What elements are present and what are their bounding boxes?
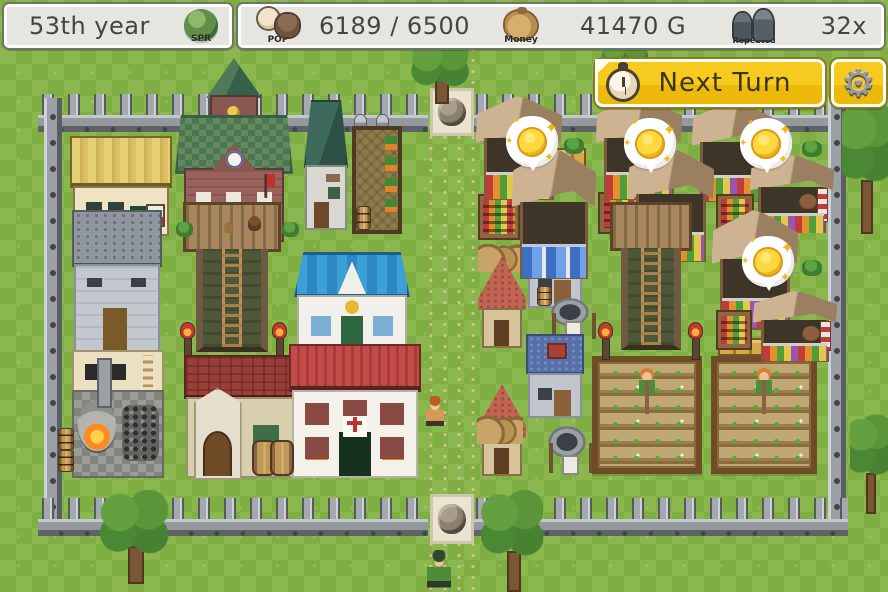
tree [98,490,170,584]
gear-icon: ⚙ [842,65,875,102]
tree [842,96,888,234]
villager [427,550,451,590]
coin-spark [741,256,749,267]
money-icon: Money [498,7,544,45]
watchtower-right[interactable] [610,202,692,350]
coin-bubble-3[interactable] [740,118,792,178]
townhall-spire [206,58,263,98]
smallstone-roof [304,100,348,168]
watchtower-shaft [196,249,269,353]
coin-spark [781,238,794,257]
watchtower-plat [183,202,281,252]
stone-warehouse[interactable] [72,210,162,352]
clinic-red-roof[interactable] [289,344,421,478]
coin-coin-face [751,129,781,159]
game-viewport: 53th year SPR POP 6189 / 6500 Money 4147… [0,0,888,592]
stall-goods [522,244,586,278]
watchtower-left[interactable] [183,202,281,352]
clinic-roof [289,344,421,392]
population-value: 6189 / 6500 [319,12,470,40]
coin-bubble-2[interactable] [624,118,676,178]
stone-well-2[interactable] [545,426,589,476]
torch-post [180,322,194,358]
stats-panel: POP 6189 / 6500 Money 41470 G Repeated 3… [238,4,884,48]
farm-scare [754,368,774,414]
watchtower-shaft [621,248,682,350]
blacksmith-bwall [72,350,164,392]
coin-spark [623,138,631,149]
tree [850,410,888,514]
market-stall-8[interactable] [755,291,835,363]
coin-spark [779,120,792,139]
repeat-value: 32x [821,12,867,40]
warehouse-roof [72,210,162,267]
warehouse-wall [74,264,160,352]
south-gate-stone [430,494,474,544]
torch-post [272,322,286,358]
coin-spark [747,118,755,128]
crop-field-right[interactable] [711,356,817,474]
coin-spark [544,150,554,164]
coin-spark [739,138,747,149]
next-turn-label: Next Turn [659,68,792,98]
coin-spark [778,152,788,166]
coin-coin-face [635,129,665,159]
bush [802,260,822,276]
coin-bubble-1[interactable] [506,116,558,176]
season-spring-icon: SPR [179,8,223,44]
blue-roof-cottage-2[interactable] [526,334,584,418]
coin-coin-face [517,127,547,157]
innblue-roof [294,252,410,297]
tree [408,42,472,104]
next-turn-button[interactable]: Next Turn [595,59,825,107]
blacksmith-yard[interactable] [72,350,164,478]
small-stone-house[interactable] [302,100,350,230]
population-icon: POP [253,7,303,45]
coin-spark [663,120,676,139]
year-text: 53th year [29,12,150,40]
year-panel: 53th year SPR [4,4,232,48]
blacksmith-yard [72,390,164,478]
innblue-wall [297,295,406,350]
watchtower-plat [610,202,692,251]
barrel [58,450,74,472]
bush [176,222,193,237]
stall-goods [763,343,827,361]
barrel [58,428,74,450]
coin-bubble-4[interactable] [742,236,794,296]
barrel [356,206,371,230]
smallstone-wall [305,165,347,230]
tree [481,488,543,592]
bluehouse-roof [526,334,584,374]
coin-spark [749,236,757,246]
pinkhouse-wall [482,308,521,348]
weaponshop-roof [70,136,172,188]
barrels [252,440,294,472]
alarm-clock-icon [609,71,637,99]
blue-roof-inn[interactable] [294,252,410,350]
coin-coin-face [753,247,783,277]
coin-spark [505,136,513,147]
coin-spark [631,118,639,128]
coin-spark [545,118,558,137]
produce-shelf [716,310,752,350]
bush [282,222,299,237]
grain-sacks [477,416,523,444]
chapel-roof [184,355,302,399]
money-value: 41470 G [580,12,686,40]
fence-bottom-left [38,498,428,540]
coin-spark [780,270,790,284]
coin-spark [662,152,672,166]
coin-spark [513,116,521,126]
settings-button[interactable]: ⚙ [831,59,886,107]
clinic-wall [292,390,419,478]
crop-field-left[interactable] [592,356,702,474]
bluehouse-wall [528,373,581,418]
villager [426,396,444,428]
farm-scare [637,368,657,414]
repeat-icon: Repeated [728,7,780,45]
